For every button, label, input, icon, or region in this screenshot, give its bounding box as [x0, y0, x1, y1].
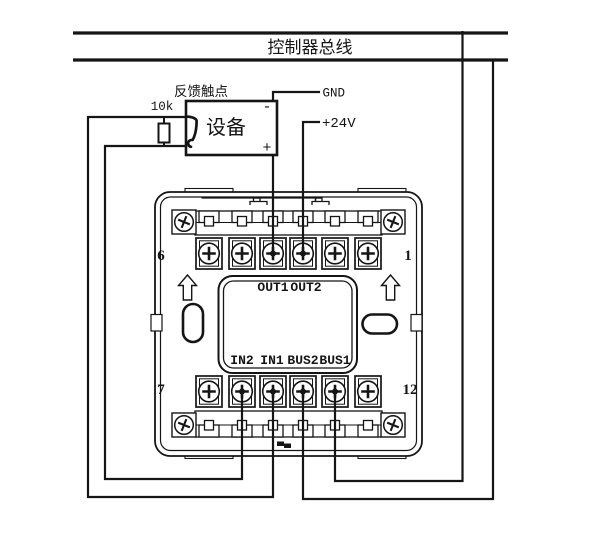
feedback-contact-label: 反馈触点 [174, 84, 228, 99]
corner-screw-top-right-icon [381, 210, 405, 234]
pin-label-7: 7 [157, 382, 165, 398]
terminal-top-1 [196, 238, 222, 269]
resistor-10k [159, 124, 170, 143]
device-plus-label: + [262, 140, 271, 157]
label-in2: IN2 [230, 353, 254, 368]
corner-screw-top-left-icon [172, 210, 196, 234]
oval-right [363, 315, 398, 334]
terminal-bottom-1 [196, 376, 222, 407]
terminal-top-2 [229, 238, 255, 269]
controller-bus: 控制器总线 [73, 33, 508, 60]
label-out2: OUT2 [290, 280, 321, 295]
oval-left [183, 304, 203, 342]
module: 6 1 7 12 OUT1 OUT2 IN2 IN1 BUS2 BUS1 [151, 189, 422, 459]
controller-bus-label: 控制器总线 [268, 38, 353, 57]
top-rail [195, 211, 382, 235]
label-out1: OUT1 [257, 280, 288, 295]
label-bus1: BUS1 [319, 353, 350, 368]
terminal-bottom-6 [355, 376, 381, 407]
bottom-rail [195, 411, 382, 437]
label-window: OUT1 OUT2 IN2 IN1 BUS2 BUS1 [219, 276, 358, 373]
label-bus2: BUS2 [287, 353, 318, 368]
resistor-value-label: 10k [151, 100, 174, 114]
terminal-top-5 [322, 238, 348, 269]
wiring-diagram-page: 控制器总线 [0, 0, 600, 536]
wiring-diagram: 控制器总线 [0, 0, 600, 536]
corner-screw-bottom-left-icon [172, 413, 196, 437]
terminal-top-6 [355, 238, 381, 269]
pin-label-12: 12 [403, 382, 418, 398]
corner-screw-bottom-right-icon [381, 413, 405, 437]
plus24v-label: +24V [322, 116, 356, 132]
pin-label-1: 1 [404, 248, 412, 264]
device-minus-label: - [262, 99, 271, 116]
wire-gnd [273, 92, 320, 101]
side-notch-left [151, 315, 162, 332]
gnd-label: GND [323, 87, 346, 101]
side-notch-right [411, 315, 422, 332]
pin-label-6: 6 [157, 248, 165, 264]
label-in1: IN1 [260, 353, 284, 368]
device-label: 设备 [206, 116, 246, 139]
